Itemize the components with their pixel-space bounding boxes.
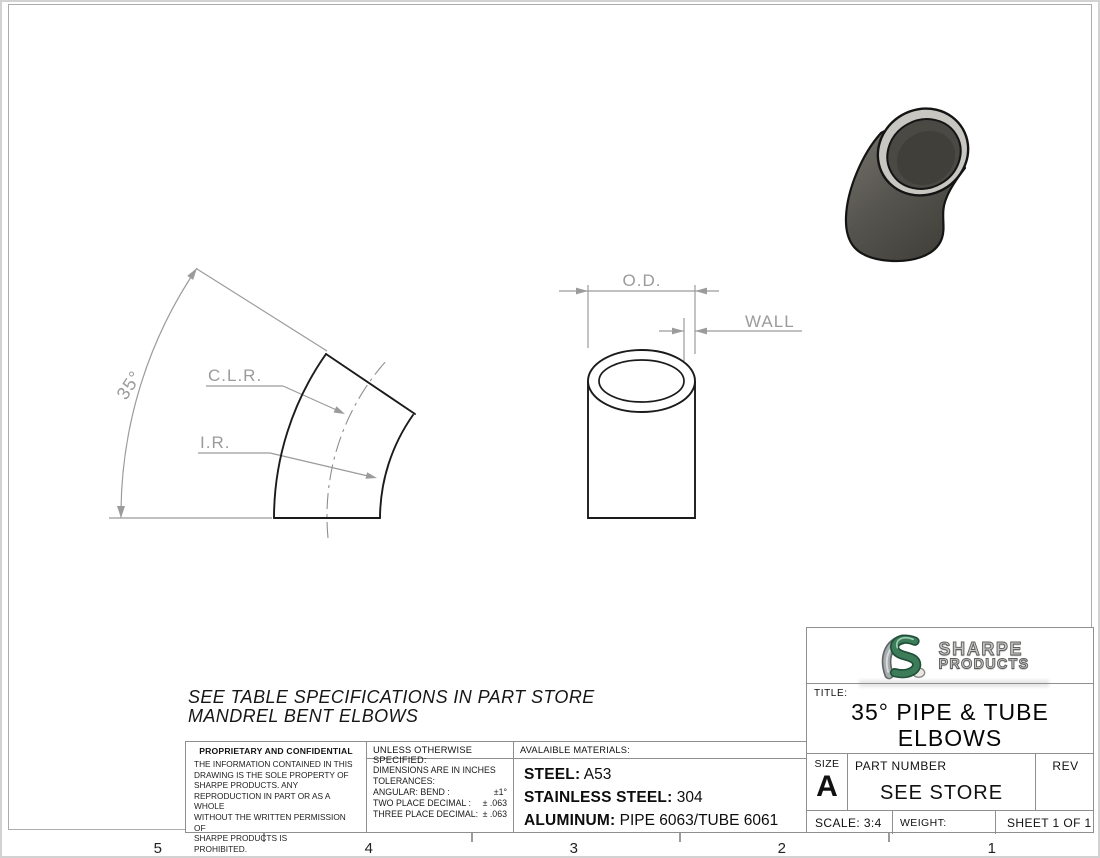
- od-label: O.D.: [623, 271, 662, 290]
- scale-value: SCALE: 3:4: [807, 811, 893, 834]
- title-label: TITLE:: [814, 688, 848, 699]
- brand-wordmark: SHARPE PRODUCTS: [939, 640, 1030, 671]
- tolerance-line: ANGULAR: BEND : ±1°: [373, 787, 507, 798]
- tube-end-view: O.D. WALL: [559, 271, 802, 518]
- tolerance-line: TOLERANCES:: [373, 776, 507, 787]
- tolerance-line: TWO PLACE DECIMAL : ± .063: [373, 798, 507, 809]
- title-block: SHARPE PRODUCTS TITLE: 35° PIPE & TUBE E…: [806, 627, 1094, 833]
- arrowhead: [576, 288, 588, 295]
- sheet-label: SHEET 1 OF 1: [996, 811, 1093, 834]
- arrowhead: [366, 472, 378, 479]
- material-row: STEEL: A53: [524, 763, 796, 786]
- arrowhead: [334, 406, 345, 414]
- tube-inner-ellipse: [599, 360, 684, 402]
- elbow-inner-arc: [380, 415, 413, 518]
- part-number-cell: PART NUMBER SEE STORE: [848, 754, 1036, 810]
- size-value: A: [807, 772, 847, 802]
- arrowhead: [695, 288, 707, 295]
- angle-label: 35°: [113, 367, 146, 403]
- drawing-title: 35° PIPE & TUBE ELBOWS: [807, 699, 1093, 751]
- size-cell: SIZE A: [807, 754, 848, 810]
- drawing-note: SEE TABLE SPECIFICATIONS IN PART STORE M…: [188, 688, 595, 726]
- arrowhead: [187, 268, 197, 280]
- logo-cell: SHARPE PRODUCTS: [807, 628, 1093, 683]
- elbow-3d-render: [846, 92, 984, 261]
- centerline-arc: [327, 360, 387, 538]
- tolerances-header: UNLESS OTHERWISE SPECIFIED:: [367, 742, 513, 759]
- wall-label: WALL: [745, 312, 795, 331]
- proprietary-block: PROPRIETARY AND CONFIDENTIAL THE INFORMA…: [185, 741, 367, 833]
- rev-cell: REV: [1036, 754, 1095, 810]
- proprietary-body: THE INFORMATION CONTAINED IN THIS DRAWIN…: [194, 759, 358, 854]
- scale-row: SCALE: 3:4 WEIGHT: SHEET 1 OF 1: [807, 810, 1093, 834]
- tolerances-block: UNLESS OTHERWISE SPECIFIED: DIMENSIONS A…: [366, 741, 514, 833]
- part-number-label: PART NUMBER: [855, 759, 1035, 773]
- materials-block: AVALAIBLE MATERIALS: STEEL: A53 STAINLES…: [513, 741, 807, 833]
- arrowhead: [672, 328, 684, 335]
- elbow-outer-arc: [274, 354, 326, 518]
- material-row: STAINLESS STEEL: 304: [524, 786, 796, 809]
- part-number-value: SEE STORE: [848, 782, 1035, 805]
- note-line-2: MANDREL BENT ELBOWS: [188, 707, 595, 726]
- clr-label: C.L.R.: [208, 366, 262, 385]
- rev-label: REV: [1036, 759, 1095, 773]
- title-cell: TITLE: 35° PIPE & TUBE ELBOWS: [807, 683, 1093, 753]
- elbow-top-face: [326, 354, 415, 414]
- elbow-side-view: 35° C.L.R. I.R.: [109, 268, 415, 538]
- brand-line-2: PRODUCTS: [939, 657, 1030, 671]
- tolerance-line: DIMENSIONS ARE IN INCHES: [373, 765, 507, 776]
- brand-line-1: SHARPE: [939, 640, 1030, 657]
- proprietary-title: PROPRIETARY AND CONFIDENTIAL: [194, 746, 358, 756]
- drawing-sheet: 5 4 3 2 1: [0, 0, 1100, 858]
- arrowhead: [695, 328, 707, 335]
- tolerance-line: THREE PLACE DECIMAL: ± .063: [373, 809, 507, 820]
- material-row: ALUMINUM: PIPE 6063/TUBE 6061: [524, 809, 796, 832]
- sharpe-logo-icon: [871, 631, 933, 681]
- materials-header: AVALAIBLE MATERIALS:: [514, 742, 806, 759]
- size-row: SIZE A PART NUMBER SEE STORE REV: [807, 753, 1093, 810]
- size-label: SIZE: [807, 758, 847, 770]
- weight-label: WEIGHT:: [893, 811, 996, 834]
- ir-label: I.R.: [200, 433, 230, 452]
- arrowhead: [117, 506, 125, 518]
- note-line-1: SEE TABLE SPECIFICATIONS IN PART STORE: [188, 688, 595, 707]
